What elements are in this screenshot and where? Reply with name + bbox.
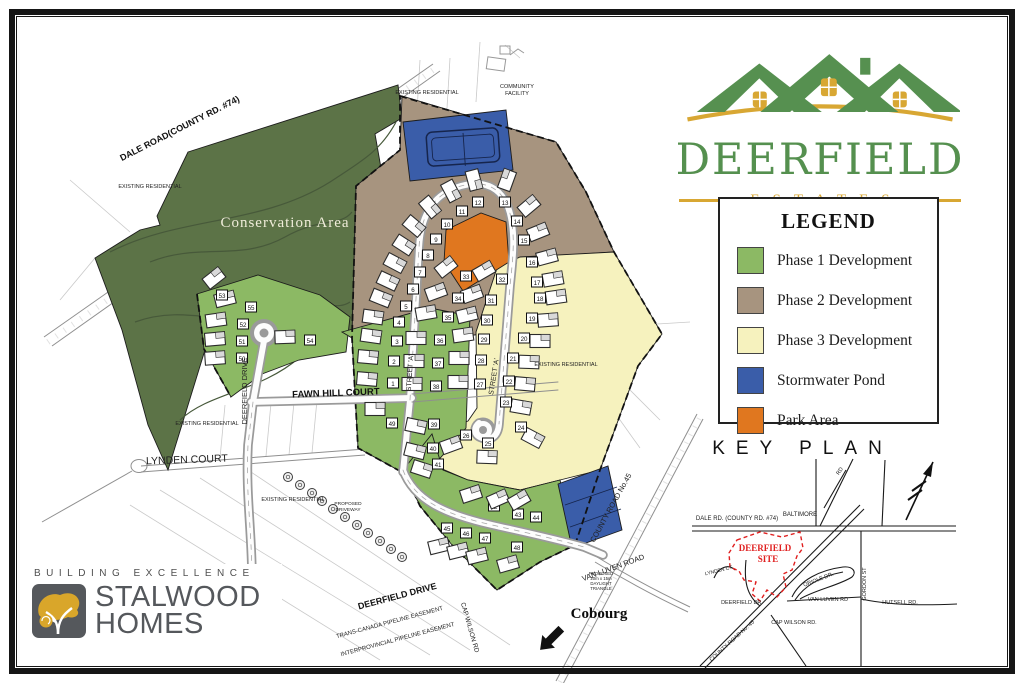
lot-number: 12: [475, 200, 482, 207]
map-label: TRIANGLE: [590, 586, 612, 591]
lot-number: 9: [434, 237, 438, 244]
lot-number: 30: [484, 318, 491, 325]
house-footprint: [510, 399, 532, 415]
lot-number: 1: [391, 381, 395, 388]
cobourg-arrow: [534, 622, 568, 656]
lot-number: 36: [437, 338, 444, 345]
lot-number: 3: [395, 339, 399, 346]
logo-wordmark: DEERFIELD: [648, 139, 992, 182]
lot-number: 34: [455, 296, 462, 303]
map-label: HUTSELL RD.: [882, 600, 918, 606]
map-label: DRIVEWAY: [335, 507, 361, 513]
map-label: INTERPROVINCIAL PIPELINE EASEMENT: [340, 622, 455, 658]
builder-name-line2: HOMES: [95, 611, 261, 638]
legend-box: LEGEND Phase 1 DevelopmentPhase 2 Develo…: [718, 197, 939, 424]
lot-number: 45: [444, 526, 451, 533]
lot-number: 41: [435, 462, 442, 469]
lot-number: 29: [481, 337, 488, 344]
house-footprint: [477, 450, 497, 464]
lot-number: 19: [529, 316, 536, 323]
community-facility-buildings: [486, 46, 524, 71]
house-footprint: [204, 332, 225, 347]
map-label: CAP WILSON RD.: [771, 620, 817, 626]
house-footprint: [545, 289, 567, 305]
legend-item: Phase 3 Development: [737, 327, 937, 354]
map-label: PROPOSED: [334, 501, 362, 507]
key-plan-title: KEY PLAN: [672, 438, 922, 460]
map-label: GORDON ST: [862, 567, 868, 601]
map-label: EXISTING RESIDENTIAL: [118, 184, 181, 190]
map-label: SITE: [758, 554, 779, 564]
house-footprint: [415, 305, 437, 321]
tree-icon: [284, 473, 293, 482]
house-footprint: [448, 376, 468, 389]
lot-number: 47: [482, 536, 489, 543]
tree-icon: [341, 513, 350, 522]
builder-wordmark: STALWOOD HOMES: [95, 584, 261, 637]
house-footprint: [449, 352, 469, 365]
lot-number: 23: [503, 400, 510, 407]
house-footprint: [362, 309, 384, 325]
logo-roofs-icon: [680, 36, 960, 132]
lot-number: 5: [404, 304, 408, 311]
legend-item: Phase 2 Development: [737, 287, 937, 314]
map-label: DEERFIELD: [739, 543, 792, 553]
map-label: BALTIMORE: [783, 512, 817, 518]
lot-number: 25: [485, 441, 492, 448]
map-label: Cobourg: [571, 606, 628, 622]
lot-number: 11: [459, 209, 466, 216]
tree-icon: [376, 537, 385, 546]
north-arrow: [906, 462, 933, 520]
tree-icon: [353, 521, 362, 530]
legend-swatch: [737, 327, 764, 354]
lot-number: 35: [445, 315, 452, 322]
lot-number: 40: [430, 446, 437, 453]
lot-number: 52: [240, 322, 247, 329]
trees: [284, 473, 407, 562]
tree-icon: [387, 545, 396, 554]
map-label: COUNTY ROAD No. 45: [709, 620, 756, 663]
lot-number: 37: [435, 361, 442, 368]
stalwood-tree-icon: [32, 584, 86, 638]
lot-number: 6: [411, 287, 415, 294]
lot-number: 43: [515, 512, 522, 519]
lot-number: 55: [248, 305, 255, 312]
legend-item: Park Area: [737, 407, 937, 434]
tree-icon: [296, 481, 305, 490]
lot-number: 8: [426, 253, 430, 260]
lot-number: 14: [514, 219, 521, 226]
legend-label: Phase 2 Development: [777, 292, 912, 310]
map-label: DEERFIELD DRIVE: [240, 357, 249, 424]
lot-number: 16: [529, 260, 536, 267]
map-label: LYNDEN COURT: [146, 453, 229, 468]
legend-label: Phase 3 Development: [777, 332, 912, 350]
key-plan: DALE RD. (COUNTY RD. #74)BALTIMORERDDEER…: [692, 459, 957, 668]
legend-label: Stormwater Pond: [777, 372, 885, 390]
map-label: CAP WILSON RD: [459, 602, 480, 654]
legend-label: Phase 1 Development: [777, 252, 912, 270]
tree-icon: [364, 529, 373, 538]
map-label: LYNDEN CT: [704, 565, 733, 578]
lot-number: 2: [392, 359, 396, 366]
lot-number: 31: [488, 298, 495, 305]
map-label: DEERFIELD DR.: [721, 600, 763, 606]
lot-number: 28: [478, 358, 485, 365]
house-footprint: [406, 332, 426, 345]
house-footprint: [205, 312, 227, 328]
legend-item: Phase 1 Development: [737, 247, 937, 274]
lot-number: 4: [397, 320, 401, 327]
tree-icon: [398, 553, 407, 562]
legend-swatch: [737, 287, 764, 314]
lot-number: 20: [521, 336, 528, 343]
house-footprint: [205, 351, 226, 365]
map-label: EXISTING RESIDENTIAL: [261, 497, 324, 503]
map-label: Conservation Area: [220, 215, 349, 231]
lot-number: 51: [239, 339, 246, 346]
lot-number: 32: [499, 277, 506, 284]
map-label: EXISTING RESIDENTIAL: [395, 90, 458, 96]
house-footprint: [452, 327, 474, 343]
legend-title: LEGEND: [720, 209, 937, 234]
lot-number: 24: [518, 425, 525, 432]
lot-number: 33: [463, 274, 470, 281]
house-footprint: [428, 537, 451, 554]
lot-number: 7: [418, 270, 422, 277]
map-label: DALE RD. (COUNTY RD. #74): [696, 516, 778, 522]
legend-label: Park Area: [777, 412, 839, 430]
map-label: FACILITY: [505, 91, 529, 97]
lot-number: 46: [463, 531, 470, 538]
site-plan-poster: { "branding": { "name": "DEERFIELD", "ta…: [0, 0, 1024, 683]
legend-item: Stormwater Pond: [737, 367, 937, 394]
house-footprint: [360, 328, 382, 344]
lot-number: 26: [463, 433, 470, 440]
stormwater-pond-north: [403, 110, 513, 181]
stalwood-homes-logo: BUILDING EXCELLENCE STALWOOD HOMES: [26, 564, 282, 646]
lot-number: 21: [510, 356, 517, 363]
lot-number: 27: [477, 382, 484, 389]
map-label: EXISTING RESIDENTIAL: [175, 421, 238, 427]
house-footprint: [275, 330, 295, 344]
lot-number: 53: [219, 293, 226, 300]
lot-number: 49: [389, 421, 396, 428]
house-footprint: [514, 377, 535, 392]
lot-number: 48: [514, 545, 521, 552]
lot-number: 10: [444, 222, 451, 229]
legend-swatch: [737, 247, 764, 274]
lot-number: 39: [431, 422, 438, 429]
map-label: COMMUNITY: [500, 84, 534, 90]
house-footprint: [357, 350, 378, 365]
builder-name-line1: STALWOOD: [95, 584, 261, 611]
lot-number: 38: [433, 384, 440, 391]
map-label: VAN LUVEN RD: [808, 597, 848, 603]
house-footprint: [538, 313, 559, 327]
builder-tagline: BUILDING EXCELLENCE: [34, 568, 278, 579]
lot-number: 44: [533, 515, 540, 522]
lot-number: 15: [521, 238, 528, 245]
lot-number: 54: [307, 338, 314, 345]
house-footprint: [530, 335, 550, 348]
lot-number: 13: [502, 200, 509, 207]
lot-number: 22: [506, 379, 513, 386]
lot-number: 18: [537, 296, 544, 303]
deerfield-estates-logo: DEERFIELD ESTATES: [648, 36, 992, 209]
house-footprint: [356, 372, 377, 387]
house-footprint: [542, 271, 564, 287]
legend-swatch: [737, 367, 764, 394]
lot-number: 17: [534, 280, 541, 287]
map-label: EXISTING RESIDENTIAL: [534, 362, 597, 368]
house-footprint: [365, 403, 385, 416]
legend-swatch: [737, 407, 764, 434]
